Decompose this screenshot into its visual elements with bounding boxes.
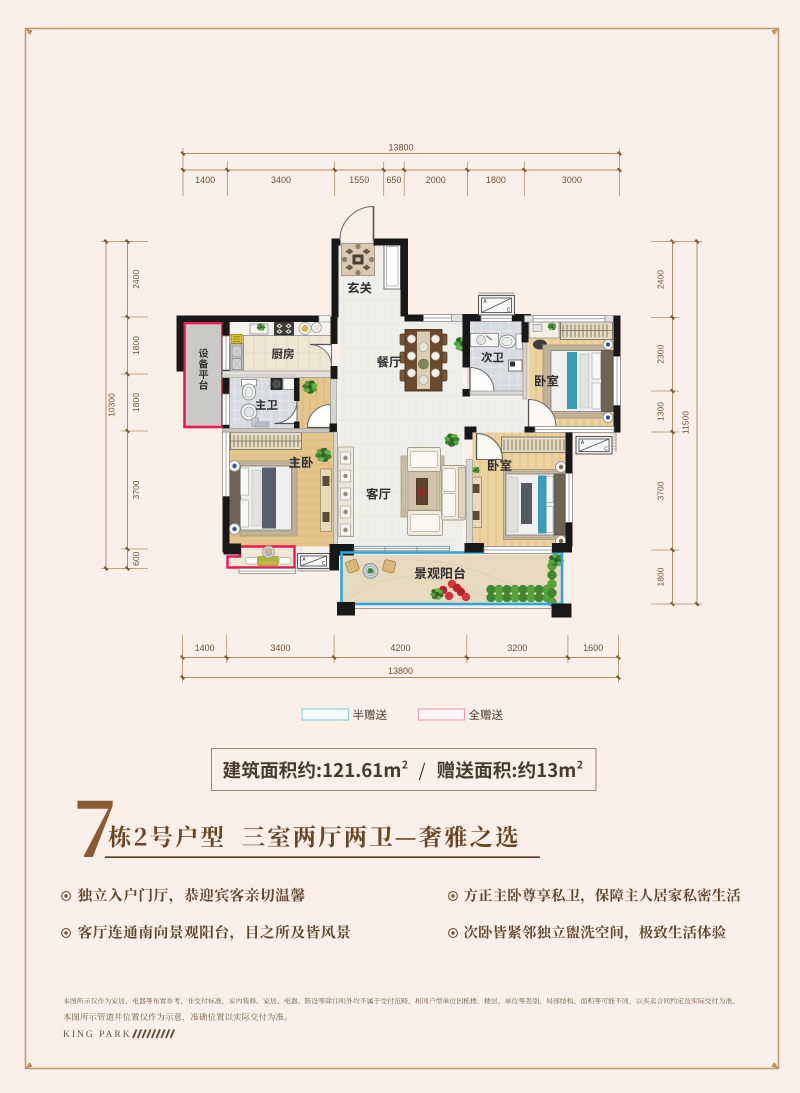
svg-text:2400: 2400 — [131, 270, 141, 289]
svg-text:C: C — [322, 561, 326, 567]
svg-text:1400: 1400 — [195, 175, 215, 185]
svg-text:13800: 13800 — [388, 666, 413, 676]
svg-text:2400: 2400 — [656, 270, 666, 289]
svg-text:3700: 3700 — [656, 481, 666, 500]
svg-text:11500: 11500 — [681, 411, 691, 434]
svg-text:3400: 3400 — [271, 175, 291, 185]
svg-text:1600: 1600 — [583, 643, 603, 653]
svg-text:1800: 1800 — [656, 567, 666, 586]
svg-text:1800: 1800 — [131, 393, 141, 412]
svg-text:10300: 10300 — [107, 393, 117, 417]
svg-text:3700: 3700 — [131, 480, 141, 499]
svg-text:2300: 2300 — [656, 345, 666, 364]
svg-text:4200: 4200 — [390, 643, 410, 653]
svg-text:2000: 2000 — [426, 175, 446, 185]
svg-text:1800: 1800 — [486, 175, 506, 185]
svg-text:1400: 1400 — [195, 643, 215, 653]
svg-text:650: 650 — [386, 175, 401, 185]
svg-text:3400: 3400 — [270, 643, 290, 653]
svg-text:1800: 1800 — [131, 336, 141, 355]
svg-text:1550: 1550 — [349, 175, 369, 185]
svg-text:3000: 3000 — [562, 175, 582, 185]
svg-text:KING PARK: KING PARK — [63, 1030, 132, 1040]
svg-text:C: C — [507, 308, 511, 314]
svg-text:1300: 1300 — [656, 402, 666, 421]
svg-text:3200: 3200 — [507, 643, 527, 653]
svg-text:600: 600 — [131, 551, 141, 565]
svg-text:13800: 13800 — [388, 143, 413, 153]
svg-text:C: C — [604, 447, 608, 453]
